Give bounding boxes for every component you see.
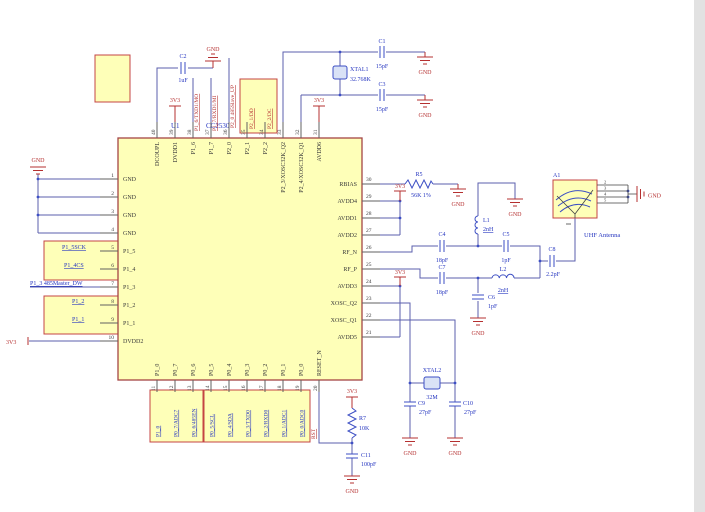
net-label: P0_5/SCL xyxy=(210,413,216,437)
pin-number: 19 xyxy=(295,385,301,391)
component-value: 27pF xyxy=(419,410,432,416)
pin-name: P2_1 xyxy=(245,142,251,154)
pin-name: P0_3 xyxy=(245,364,251,376)
component-ref: XTAL1 xyxy=(350,67,369,73)
pin-name: AVDD6 xyxy=(317,142,323,162)
net-label: P0_3/TXD0 xyxy=(246,410,252,437)
pin-number: 32 xyxy=(295,129,301,135)
component-value: 1pF xyxy=(488,304,498,310)
chip-refdes: U1 xyxy=(171,122,180,130)
component-value: 27pF xyxy=(464,410,477,416)
pin-number: 40 xyxy=(151,129,157,135)
pin-number: 12 xyxy=(169,385,175,391)
component-value: 10K xyxy=(359,426,370,432)
component-value: 18pF xyxy=(436,258,449,264)
gnd-label: GND xyxy=(419,113,433,119)
component-ref: C8 xyxy=(548,247,555,253)
pin-number: 35 xyxy=(241,129,247,135)
component-ref: C11 xyxy=(361,453,371,459)
pin-name: P2_2 xyxy=(263,142,269,154)
pin-name: GND xyxy=(123,213,137,219)
component-ref: C4 xyxy=(438,232,445,238)
component-ref: C3 xyxy=(378,82,385,88)
component-ref: XTAL2 xyxy=(423,368,442,374)
component-value: 15pF xyxy=(376,107,389,113)
pin-name: P0_0 xyxy=(299,364,305,376)
pin-name: P1_4 xyxy=(123,267,135,273)
net-label: P2_2/DC xyxy=(267,108,273,129)
component-ref: C6 xyxy=(488,295,495,301)
pin-name: RF_P xyxy=(343,267,357,273)
bottom-label-box-2 xyxy=(204,390,310,442)
gnd-label: GND xyxy=(449,451,463,457)
component-ref: R5 xyxy=(415,172,422,178)
pin-number: 17 xyxy=(259,385,265,391)
pin-number: 18 xyxy=(277,385,283,391)
pin-name: P1_1 xyxy=(123,321,135,327)
pin-number: 31 xyxy=(313,129,319,135)
pin-name: RESET_N xyxy=(317,350,323,376)
pin-name: P1_0 xyxy=(155,364,161,376)
pin-number: 3 xyxy=(111,209,114,215)
pin-number: 13 xyxy=(187,385,193,391)
pin-name: P0_6 xyxy=(191,364,197,376)
component-ref: C10 xyxy=(463,401,473,407)
power-label: 3V3 xyxy=(314,98,324,104)
component-ref: C7 xyxy=(438,265,445,271)
component-ref: C2 xyxy=(179,54,186,60)
net-label: P1_6/TXD1/MO xyxy=(194,94,200,131)
net-label: P1_2 xyxy=(72,299,84,305)
net-label: P1_4CS xyxy=(64,263,84,269)
main-chip: U1 CC2530 GND GND GND GND P1_5 P1_4 P1_3… xyxy=(100,122,380,392)
pin-number: 16 xyxy=(241,385,247,391)
net-label: P2_0 485Slave_UP xyxy=(230,85,236,128)
gnd-label: GND xyxy=(472,331,486,337)
pin-name: P2_4/XOSC32K_Q1 xyxy=(299,142,305,193)
pin-number: 36 xyxy=(223,129,229,135)
power-label: 3V3 xyxy=(6,340,16,346)
power-label: 3V3 xyxy=(347,389,357,395)
pin-number: 8 xyxy=(111,299,114,305)
net-label-rst: RST xyxy=(311,428,317,439)
pin-name: P1_6 xyxy=(191,142,197,154)
component-value: 15pF xyxy=(376,64,389,70)
pin-number: 7 xyxy=(111,281,114,287)
pin-name: XOSC_Q2 xyxy=(331,301,357,307)
component-value: 2nH xyxy=(483,227,494,233)
component-ref: C1 xyxy=(378,39,385,45)
pin-number: 22 xyxy=(366,313,372,319)
pin-name: AVDD2 xyxy=(337,233,357,239)
gnd-label: GND xyxy=(404,451,418,457)
pin-name: GND xyxy=(123,177,137,183)
net-label: P0_2/RXD0 xyxy=(264,410,270,437)
pin-name: P1_7 xyxy=(209,142,215,154)
pin-name: P0_1 xyxy=(281,364,287,376)
pin-name: P2_0 xyxy=(227,142,233,154)
pin-name: DVDD2 xyxy=(123,339,143,345)
pin-number: 25 xyxy=(366,262,372,268)
net-label: P1_3 485Master_DW xyxy=(30,281,83,287)
net-label: P1_0 xyxy=(156,425,162,437)
gnd-label: GND xyxy=(648,194,662,200)
antenna-description: UHF Antenna xyxy=(584,232,620,239)
pin-number: 1 xyxy=(111,173,114,179)
pin-number: 11 xyxy=(151,385,157,391)
component-ref: L2 xyxy=(500,267,507,273)
pin-number: 20 xyxy=(313,385,319,391)
pin-number: 21 xyxy=(366,330,372,336)
power-label: 3V3 xyxy=(395,184,405,190)
pin-name: P0_7 xyxy=(173,364,179,376)
pin-name: DCOUPL xyxy=(155,142,161,166)
component-ref: L1 xyxy=(483,218,490,224)
component-value: 18pF xyxy=(436,290,449,296)
pin-number: 2 xyxy=(111,191,114,197)
pin-name: XOSC_Q1 xyxy=(331,318,357,324)
component-value: 32M xyxy=(426,395,438,401)
pin-number: 39 xyxy=(169,129,175,135)
gnd-label: GND xyxy=(207,47,221,53)
pin-name: RBIAS xyxy=(339,182,357,188)
pin-number: 27 xyxy=(366,228,372,234)
pin-name: P1_2 xyxy=(123,303,135,309)
pin-number: 4 xyxy=(111,227,114,233)
net-label: P1_7/RXD1/MI xyxy=(212,95,218,131)
pin-number: 6 xyxy=(111,263,114,269)
pin-number: 30 xyxy=(366,177,372,183)
pin-name: P2_3/XOSC32K_Q2 xyxy=(281,142,287,193)
component-ref: R7 xyxy=(359,416,366,422)
pin-number: 28 xyxy=(366,211,372,217)
component-ref: C5 xyxy=(502,232,509,238)
net-label: P0_7/ADC7 xyxy=(174,410,180,437)
pin-name: RF_N xyxy=(342,250,357,256)
pin-name: P0_4 xyxy=(227,364,233,376)
pin-number: 38 xyxy=(187,129,193,135)
net-label: P1_5SCK xyxy=(62,245,87,251)
schematic-page: U1 CC2530 GND GND GND GND P1_5 P1_4 P1_3… xyxy=(0,0,705,512)
pin-number: 15 xyxy=(223,385,229,391)
pin-number: 10 xyxy=(109,335,115,341)
gnd-label: GND xyxy=(32,158,46,164)
component-value: 56K 1% xyxy=(411,193,431,199)
pin-name: AVDD1 xyxy=(337,216,357,222)
antenna-pin-number: 2 xyxy=(604,180,606,185)
component-value: 1uF xyxy=(178,78,188,84)
power-label: 3V3 xyxy=(395,270,405,276)
pin-name: P0_5 xyxy=(209,364,215,376)
component-ref: C9 xyxy=(418,401,425,407)
pin-name: DVDD1 xyxy=(173,142,179,162)
gnd-label: GND xyxy=(419,70,433,76)
pin-name: GND xyxy=(123,195,137,201)
component-value: 32.768K xyxy=(350,77,372,83)
pin-name: GND xyxy=(123,231,137,237)
component-value: 2.2pF xyxy=(546,272,561,278)
component-value: 2nH xyxy=(498,288,509,294)
gnd-label: GND xyxy=(509,212,523,218)
pin-name: AVDD3 xyxy=(337,284,357,290)
pin-number: 33 xyxy=(277,129,283,135)
pin-name: AVDD5 xyxy=(337,335,357,341)
pin-number: 9 xyxy=(111,317,114,323)
net-label: P0_0/ADC0 xyxy=(300,410,306,437)
pin-number: 34 xyxy=(259,129,265,135)
component-ref: A1 xyxy=(553,173,560,179)
pin-name: P1_3 xyxy=(123,285,135,291)
net-label: P1_1 xyxy=(72,317,84,323)
component-value: 100pF xyxy=(361,462,377,468)
pin-number: 37 xyxy=(205,129,211,135)
pin-number: 26 xyxy=(366,245,372,251)
schematic-canvas: U1 CC2530 GND GND GND GND P1_5 P1_4 P1_3… xyxy=(0,0,705,512)
pin-number: 29 xyxy=(366,194,372,200)
pin-name: P0_2 xyxy=(263,364,269,376)
pin-number: 24 xyxy=(366,279,372,285)
page-edge xyxy=(694,0,705,512)
pin-number: 23 xyxy=(366,296,372,302)
pin-number: 14 xyxy=(205,385,211,391)
spare-part-box xyxy=(95,55,130,102)
pin-name: AVDD4 xyxy=(337,199,357,205)
net-label: P0_1/ADC1 xyxy=(282,410,288,437)
gnd-label: GND xyxy=(452,202,466,208)
component-value: 1pF xyxy=(501,258,511,264)
power-label: 3V3 xyxy=(170,98,180,104)
pin-name: P1_5 xyxy=(123,249,135,255)
gnd-label: GND xyxy=(346,489,360,495)
net-label: P2_1/DD xyxy=(249,108,255,129)
net-label: P0_4/SDA xyxy=(228,413,234,437)
chip-body xyxy=(118,138,362,380)
pin-number: 5 xyxy=(111,245,114,251)
net-label: P0_6/485EN xyxy=(192,409,198,437)
